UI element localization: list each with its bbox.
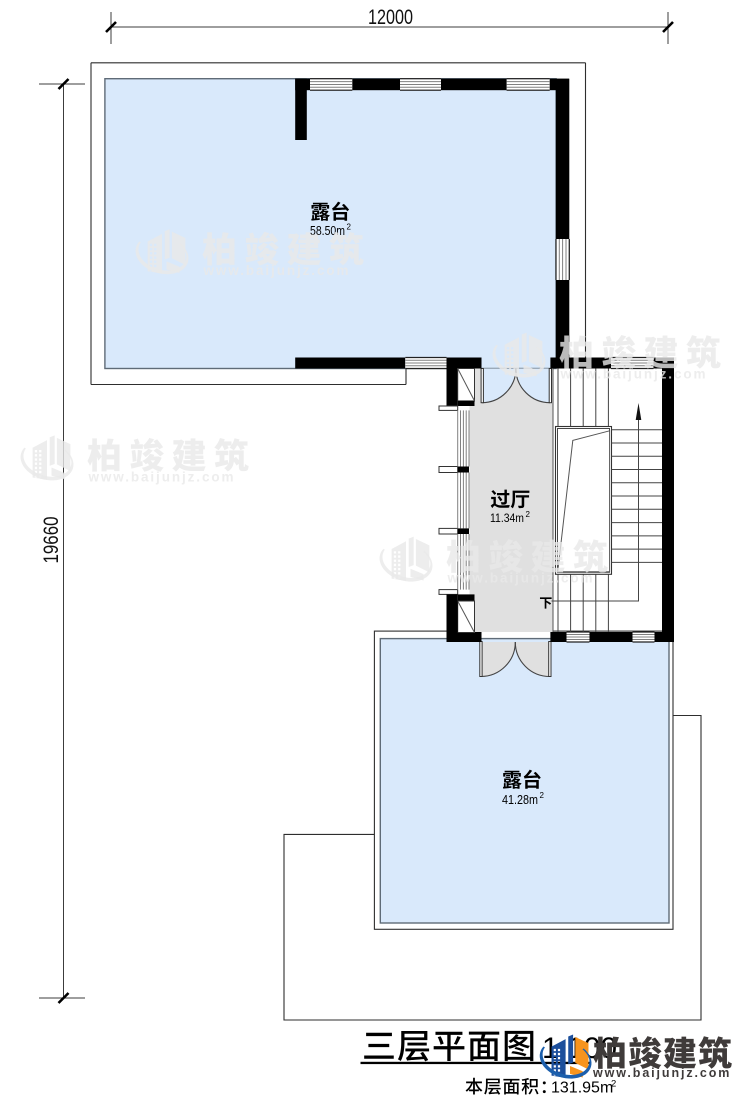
svg-text:131.95m: 131.95m (551, 1080, 613, 1097)
svg-text:12000: 12000 (368, 5, 413, 29)
svg-text:www.baijunjz.com: www.baijunjz.com (447, 571, 595, 586)
svg-text:2: 2 (526, 510, 531, 519)
svg-text:2: 2 (347, 223, 352, 232)
svg-text:19660: 19660 (39, 516, 63, 563)
svg-text:41.28m: 41.28m (502, 793, 538, 807)
svg-text:www.baijunjz.com: www.baijunjz.com (88, 469, 236, 484)
svg-text:2: 2 (540, 791, 545, 800)
svg-text:2: 2 (611, 1079, 616, 1090)
svg-text:11.34m: 11.34m (490, 511, 524, 525)
svg-text:www.baijunjz.com: www.baijunjz.com (592, 1066, 731, 1080)
svg-text:www.baijunjz.com: www.baijunjz.com (560, 366, 708, 381)
svg-text:www.baijunjz.com: www.baijunjz.com (203, 263, 351, 278)
